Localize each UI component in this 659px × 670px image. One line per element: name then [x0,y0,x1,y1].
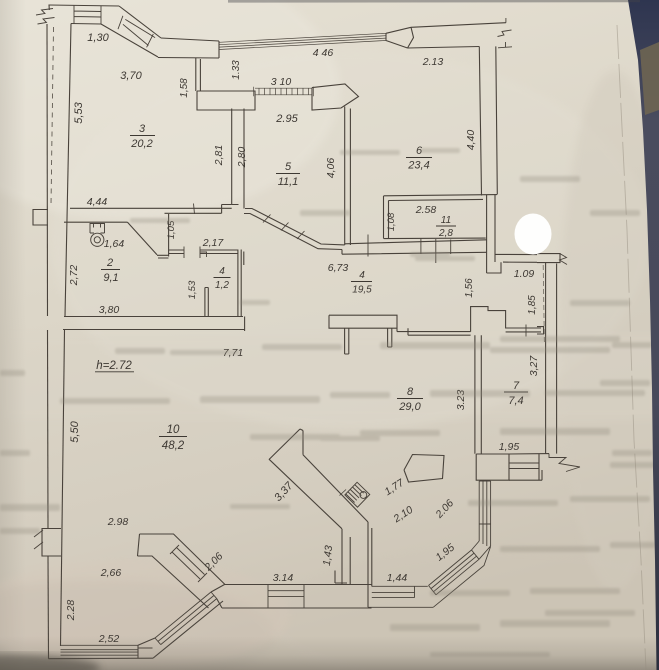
svg-text:4 46: 4 46 [313,47,334,59]
svg-text:6,73: 6,73 [328,262,349,274]
svg-text:3,27: 3,27 [528,355,540,377]
svg-text:4,40: 4,40 [465,130,477,151]
svg-text:9,1: 9,1 [103,272,118,284]
svg-text:1,53: 1,53 [187,280,198,299]
svg-text:11: 11 [441,215,451,226]
svg-text:3 10: 3 10 [271,76,292,88]
svg-text:2.13: 2.13 [422,56,444,68]
svg-text:1,44: 1,44 [387,572,408,584]
svg-text:29,0: 29,0 [398,401,421,413]
svg-text:1,56: 1,56 [464,278,475,298]
svg-text:11,1: 11,1 [278,176,299,188]
svg-text:1.33: 1.33 [231,60,242,80]
svg-text:1,64: 1,64 [104,238,125,250]
svg-text:5,50: 5,50 [69,420,81,442]
svg-text:4,06: 4,06 [325,158,337,179]
svg-text:2,80: 2,80 [236,147,248,169]
svg-text:2,72: 2,72 [68,265,80,287]
svg-text:1,85: 1,85 [527,295,538,315]
svg-text:1,08: 1,08 [386,212,397,231]
svg-text:3: 3 [139,123,146,135]
svg-text:4,44: 4,44 [87,196,108,208]
svg-text:5,53: 5,53 [73,101,85,123]
svg-text:8: 8 [407,386,414,398]
svg-text:1,2: 1,2 [215,280,229,291]
svg-text:2,66: 2,66 [100,567,122,579]
svg-text:3,80: 3,80 [99,304,120,316]
svg-text:20,2: 20,2 [130,138,152,150]
svg-text:2,81: 2,81 [213,145,225,166]
svg-text:h=2.72: h=2.72 [96,360,132,372]
svg-text:2: 2 [106,257,113,269]
svg-text:2.98: 2.98 [107,516,129,528]
svg-text:2.28: 2.28 [65,600,77,622]
svg-text:1,95: 1,95 [499,441,520,453]
svg-text:3,70: 3,70 [120,70,142,82]
svg-text:3.14: 3.14 [273,572,294,584]
svg-text:1,58: 1,58 [179,78,190,98]
svg-text:1,30: 1,30 [87,32,109,44]
svg-text:2.95: 2.95 [275,113,298,125]
svg-text:4: 4 [359,270,365,281]
svg-text:4: 4 [219,266,225,277]
svg-text:2.58: 2.58 [415,204,437,216]
svg-text:19,5: 19,5 [352,285,372,296]
svg-text:1,43: 1,43 [321,545,335,567]
svg-text:5: 5 [285,161,292,173]
svg-text:2,17: 2,17 [202,237,225,249]
svg-text:10: 10 [167,424,180,436]
svg-text:48,2: 48,2 [162,440,185,452]
svg-text:1.09: 1.09 [514,268,535,280]
svg-text:2,8: 2,8 [438,228,453,239]
svg-text:23,4: 23,4 [407,160,429,172]
